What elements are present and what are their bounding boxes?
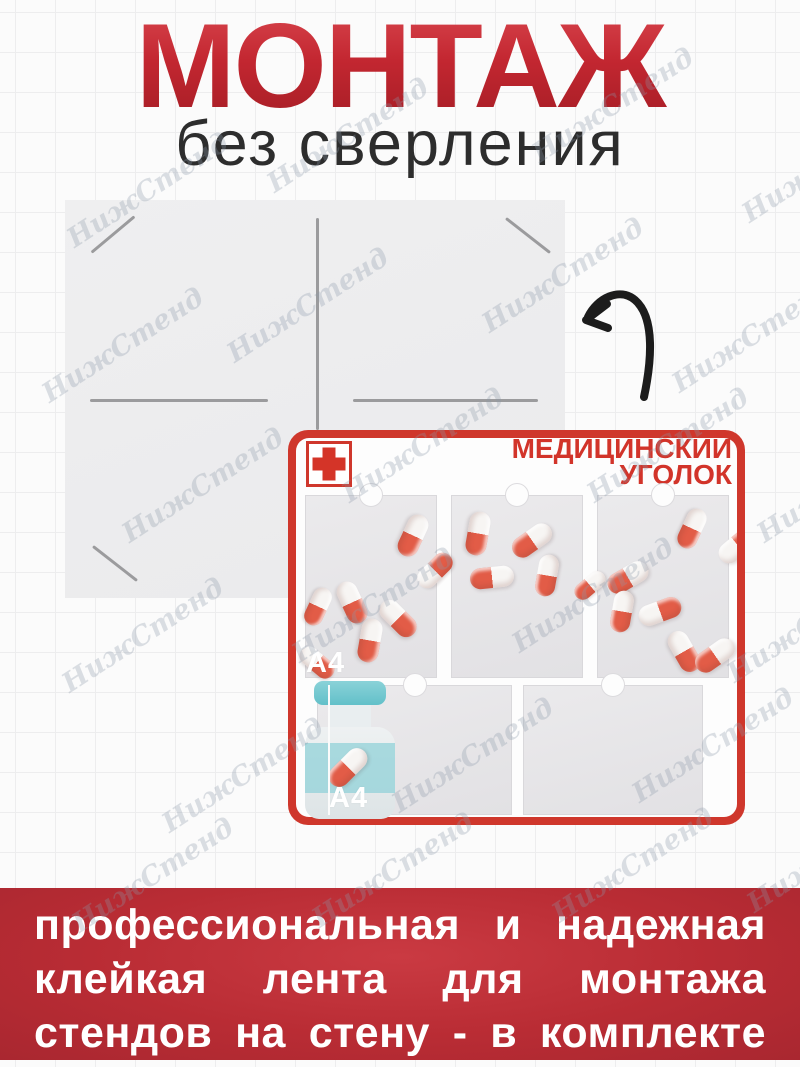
- capsule-icon: [301, 585, 335, 629]
- medicine-bottle-icon: A4: [305, 681, 395, 821]
- tape-strip-vertical: [316, 218, 319, 430]
- capsule-icon: [413, 549, 457, 593]
- tape-strip-top-right: [505, 217, 551, 254]
- capsule-icon: [375, 596, 421, 642]
- pocket-edge-highlight: [328, 685, 330, 815]
- medical-corner-stand: МЕДИЦИНСКИЙ УГОЛОК A4 A4: [288, 430, 745, 825]
- capsule-icon: [609, 589, 636, 634]
- banner-line-3: стендов на стену - в комплекте: [34, 1006, 766, 1060]
- tape-strip-bottom-left: [92, 545, 138, 582]
- headline-montazh: МОНТАЖ: [0, 6, 800, 126]
- product-image: МОНТАЖ без сверления МЕДИЦИНСКИЙ УГОЛОК: [0, 0, 800, 1067]
- capsule-icon: [469, 565, 515, 590]
- a4-label-bottom: A4: [329, 782, 368, 815]
- a4-label-top: A4: [306, 647, 345, 680]
- capsule-icon: [356, 617, 384, 664]
- capsule-icon: [674, 505, 710, 551]
- capsule-icon: [394, 511, 432, 560]
- capsule-icon: [714, 523, 737, 567]
- capsule-icon: [691, 634, 737, 676]
- banner-line-1: профессиональная и надежная: [34, 898, 766, 952]
- bottom-banner: профессиональная и надежная клейкая лент…: [0, 888, 800, 1060]
- curved-arrow-icon: [563, 278, 675, 410]
- capsule-icon: [534, 553, 561, 598]
- capsule-icon: [464, 510, 492, 557]
- bottle-cap: [314, 681, 386, 705]
- banner-line-2: клейкая лента для монтажа: [34, 952, 766, 1006]
- tape-strip-top-left: [91, 215, 136, 253]
- tape-strip-left-horizontal: [90, 399, 268, 402]
- tape-strip-right-horizontal: [353, 399, 538, 402]
- headline-subtitle: без сверления: [0, 113, 800, 176]
- capsule-icon: [571, 568, 609, 603]
- capsule-icon: [636, 594, 685, 629]
